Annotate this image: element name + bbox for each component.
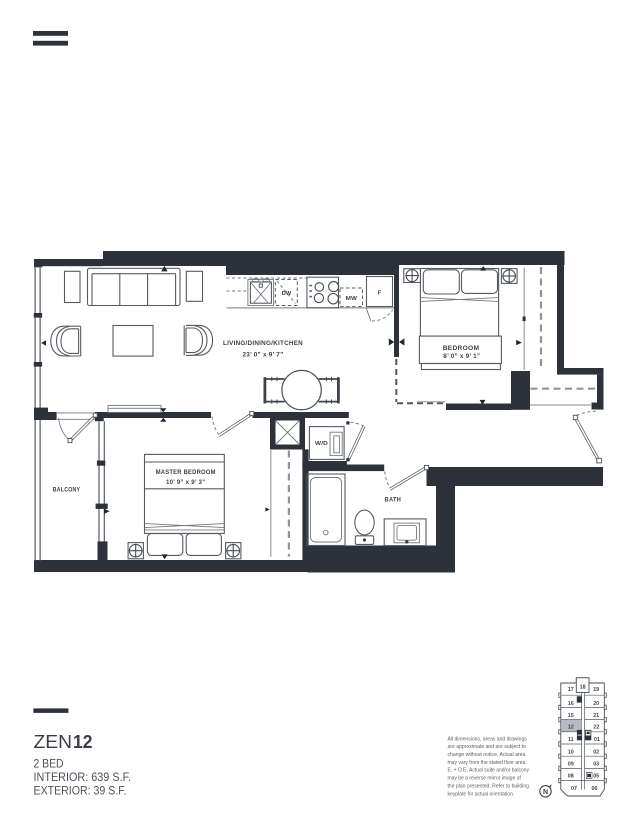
svg-text:8’ 0” x 9’ 1”: 8’ 0” x 9’ 1” bbox=[443, 353, 480, 360]
svg-text:03: 03 bbox=[593, 762, 599, 768]
svg-text:05: 05 bbox=[593, 773, 599, 779]
svg-text:INTERIOR: 639 S.F.: INTERIOR: 639 S.F. bbox=[34, 770, 132, 784]
svg-text:2 BED: 2 BED bbox=[34, 757, 64, 771]
svg-text:22: 22 bbox=[593, 725, 599, 731]
svg-text:15: 15 bbox=[568, 713, 574, 719]
svg-text:W/D: W/D bbox=[315, 441, 328, 447]
svg-text:11: 11 bbox=[568, 737, 574, 743]
svg-text:change without notice. Actual: change without notice. Actual area bbox=[448, 752, 526, 758]
svg-text:09: 09 bbox=[568, 762, 574, 768]
svg-text:DW: DW bbox=[282, 291, 292, 297]
svg-text:MW: MW bbox=[346, 296, 358, 302]
svg-text:20: 20 bbox=[593, 701, 599, 707]
svg-text:may vary from the stated floor: may vary from the stated floor area. bbox=[448, 760, 528, 766]
svg-text:23’ 0” x 9’ 7”: 23’ 0” x 9’ 7” bbox=[243, 352, 284, 359]
svg-text:10: 10 bbox=[568, 749, 574, 755]
svg-text:10’ 9” x 9’ 3”: 10’ 9” x 9’ 3” bbox=[166, 479, 206, 486]
svg-text:may be a reverse mirror image: may be a reverse mirror image of bbox=[448, 776, 522, 782]
svg-text:19: 19 bbox=[593, 687, 599, 693]
svg-text:LIVING/DINING/KITCHEN: LIVING/DINING/KITCHEN bbox=[223, 340, 303, 347]
svg-text:BALCONY: BALCONY bbox=[53, 488, 81, 494]
svg-text:MASTER BEDROOM: MASTER BEDROOM bbox=[156, 469, 216, 476]
svg-text:06: 06 bbox=[592, 786, 598, 792]
svg-text:12: 12 bbox=[568, 725, 574, 731]
svg-text:16: 16 bbox=[568, 701, 574, 707]
svg-text:F: F bbox=[378, 291, 382, 297]
svg-text:E. + O.E. Actual suite and/or: E. + O.E. Actual suite and/or balcony bbox=[448, 768, 530, 774]
svg-text:07: 07 bbox=[571, 786, 577, 792]
svg-text:the plan presented. Refer to b: the plan presented. Refer to building bbox=[448, 783, 530, 789]
svg-text:18: 18 bbox=[580, 684, 586, 690]
svg-text:keyplate for actual orientatio: keyplate for actual orientation. bbox=[448, 791, 515, 797]
svg-text:BATH: BATH bbox=[385, 497, 402, 504]
svg-text:01: 01 bbox=[594, 737, 600, 743]
svg-text:EXTERIOR: 39 S.F.: EXTERIOR: 39 S.F. bbox=[34, 784, 127, 798]
svg-text:17: 17 bbox=[568, 687, 574, 693]
svg-text:ZEN12: ZEN12 bbox=[34, 731, 93, 752]
svg-text:are approximate and are subjec: are approximate and are subject to bbox=[448, 744, 527, 750]
svg-text:21: 21 bbox=[593, 713, 599, 719]
svg-text:08: 08 bbox=[568, 773, 574, 779]
svg-text:N: N bbox=[543, 789, 548, 796]
svg-text:BEDROOM: BEDROOM bbox=[443, 345, 480, 352]
svg-text:02: 02 bbox=[593, 749, 599, 755]
svg-text:All dimensions, areas and draw: All dimensions, areas and drawings bbox=[448, 736, 527, 742]
